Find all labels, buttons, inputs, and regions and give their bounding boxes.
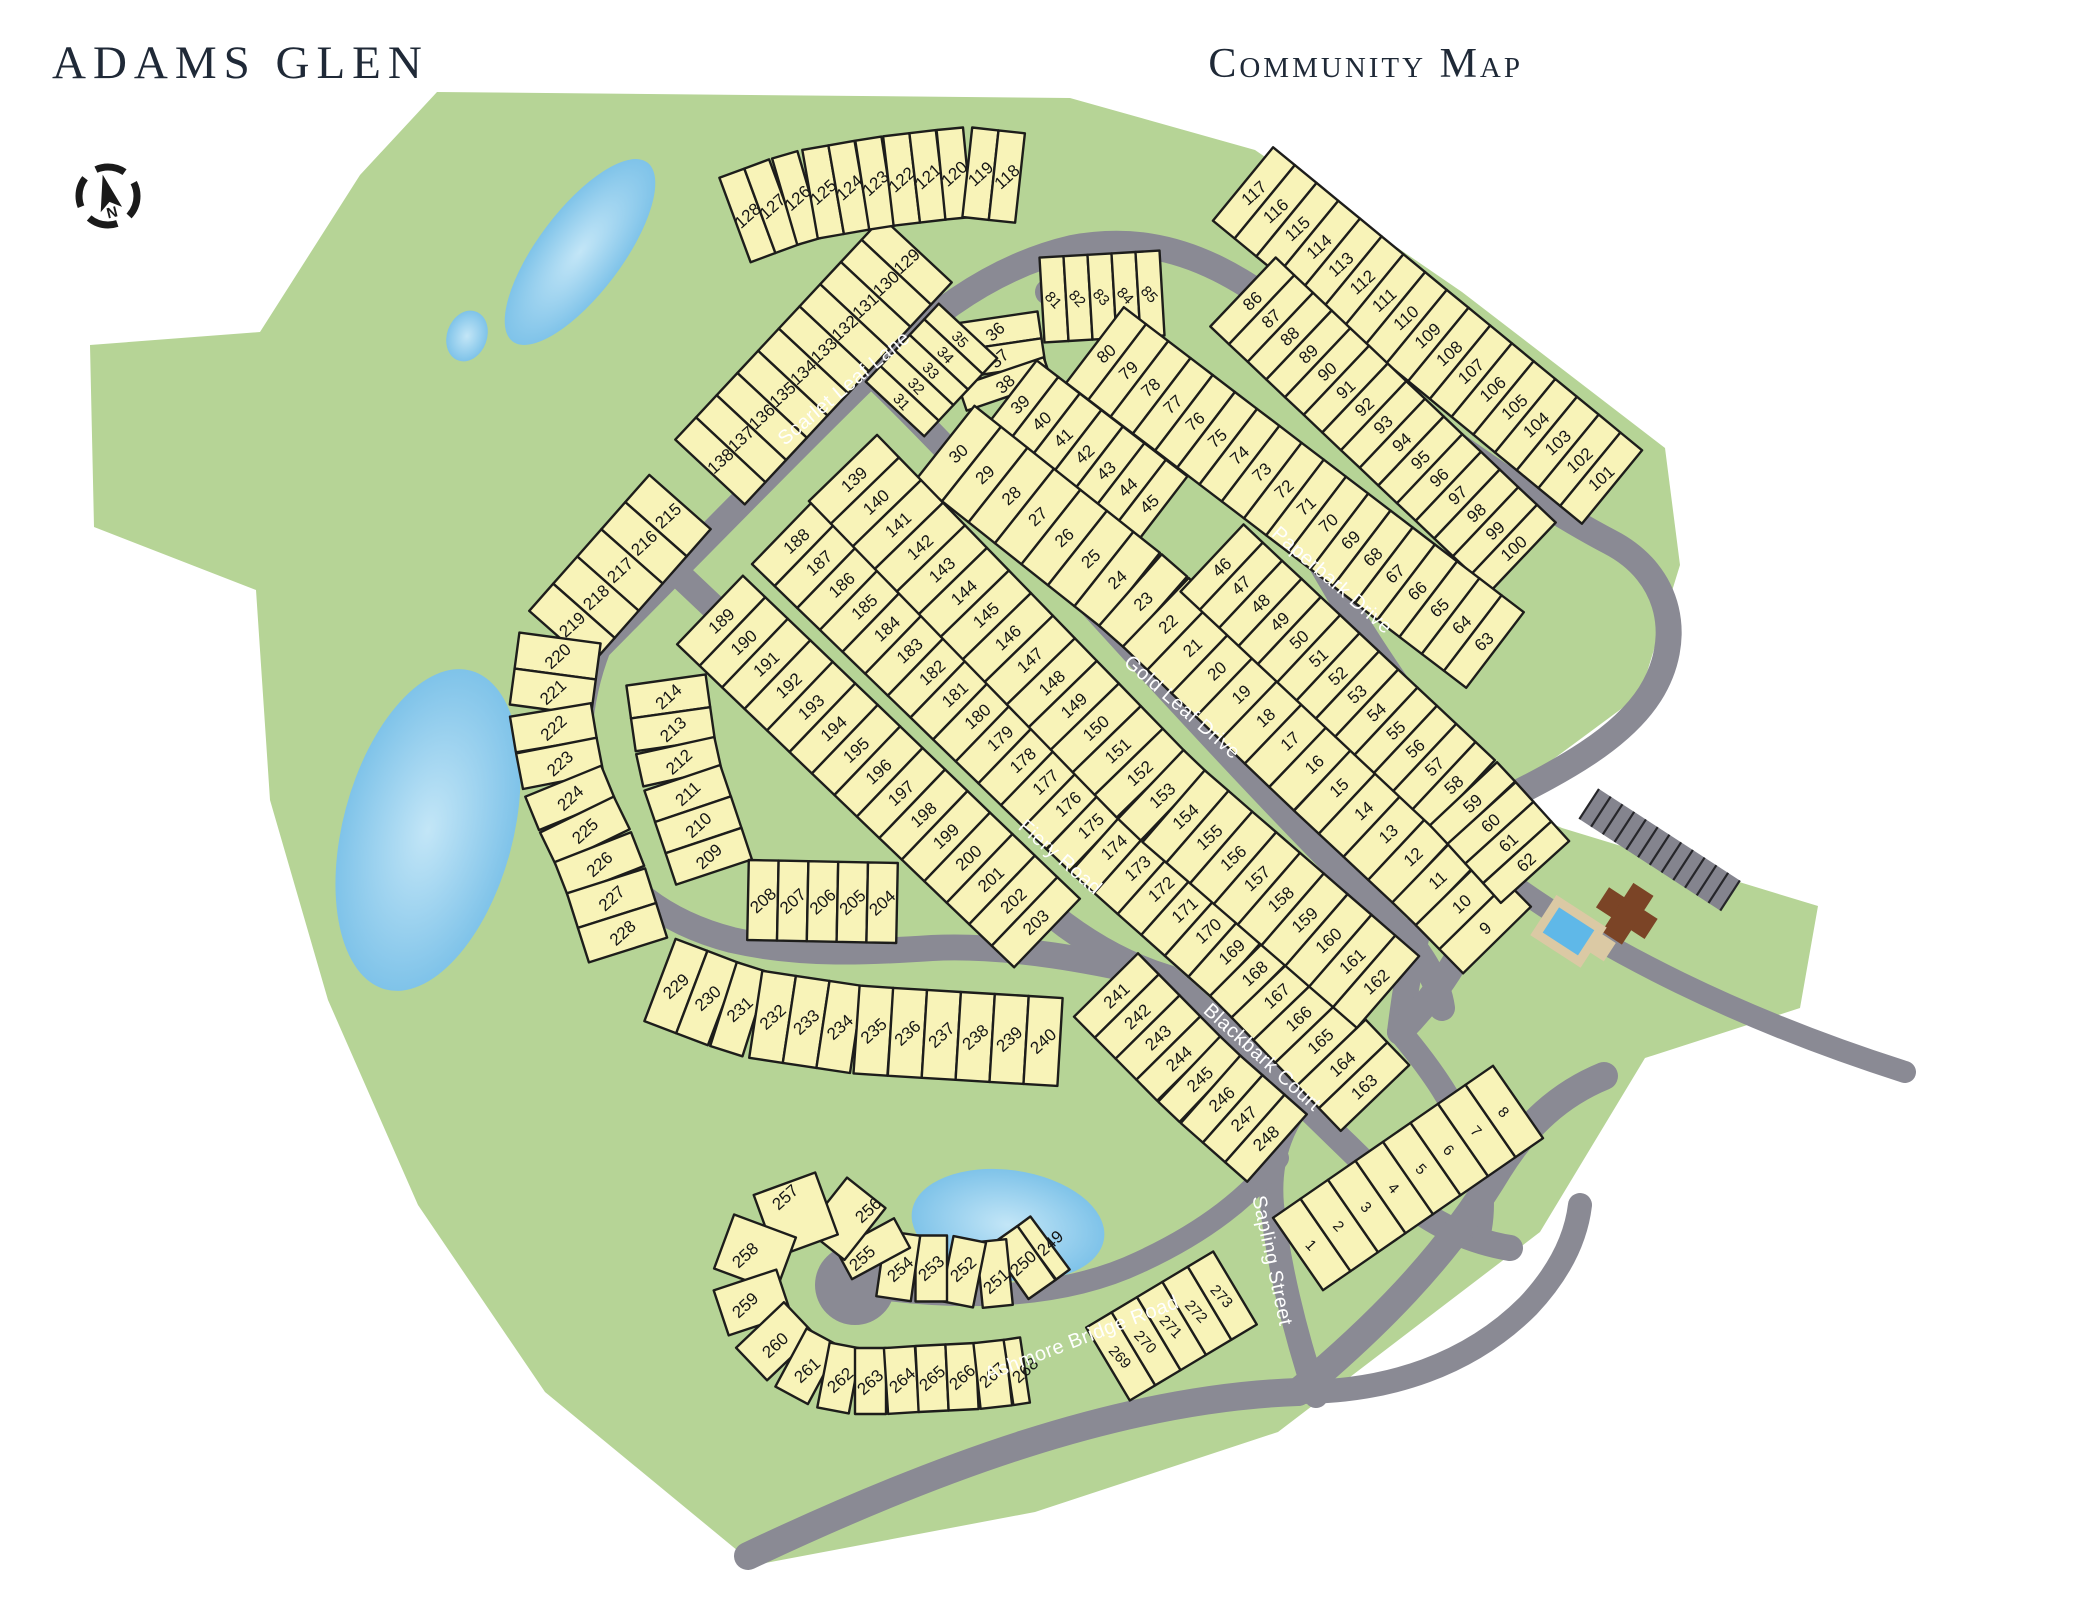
page-subtitle: Community Map [1208, 40, 1523, 88]
community-map-svg: 1291301311321331341351361371381281271261… [0, 0, 2075, 1603]
compass-icon: N [79, 167, 137, 225]
svg-text:N: N [105, 203, 120, 222]
page-title: ADAMS GLEN [52, 36, 429, 90]
community-map-page: ADAMS GLEN Community Map 129130131132133… [0, 0, 2075, 1603]
